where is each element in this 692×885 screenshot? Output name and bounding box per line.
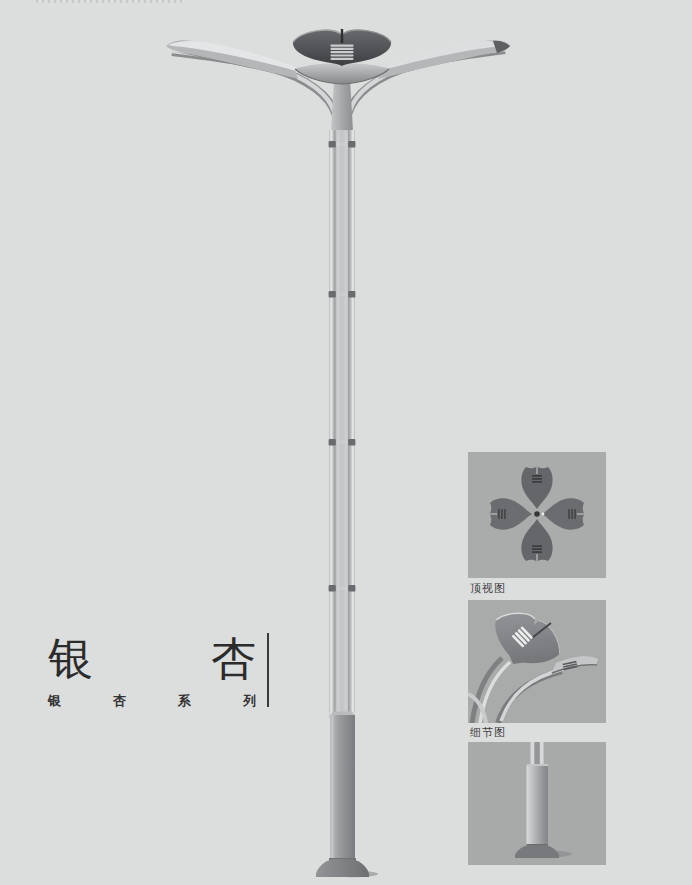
- left-arm: [172, 51, 339, 130]
- series-subtitle: 银 杏 系 列: [48, 692, 256, 710]
- pole: [329, 130, 355, 718]
- pole-base-detail-image: [468, 742, 606, 865]
- right-arm: [345, 49, 505, 130]
- detail-panel-head-detail: [468, 600, 606, 723]
- head-louvers: [331, 45, 354, 60]
- base-column: [329, 712, 355, 861]
- subtitle-char: 系: [178, 692, 191, 710]
- series-title-block: 银 杏 银 杏 系 列: [48, 636, 256, 710]
- lamp-stem: [331, 80, 353, 132]
- head-collar: [295, 63, 389, 84]
- product-title: 银 杏: [48, 636, 256, 681]
- base-plate: [316, 858, 378, 877]
- subtitle-char: 列: [243, 692, 256, 710]
- detail-panel-base: [468, 742, 606, 865]
- right-lamp-blade: [378, 40, 510, 79]
- panel-caption: 细节图: [470, 725, 506, 739]
- left-lamp-blade: [166, 40, 298, 79]
- panel-caption: 顶视图: [470, 581, 506, 595]
- top-clipped-text-remnant: [36, 0, 186, 3]
- catalog-page: 银 杏 银 杏 系 列: [0, 0, 692, 885]
- lamp-top-view-image: [468, 452, 606, 578]
- base-detail-column: [527, 764, 549, 845]
- subtitle-char: 杏: [113, 692, 126, 710]
- title-char: 银: [48, 636, 93, 681]
- title-char: 杏: [211, 636, 256, 681]
- title-divider-line: [267, 633, 269, 707]
- pole-joint-bands: [329, 141, 356, 592]
- lamp-head-detail-image: [468, 600, 606, 723]
- subtitle-char: 银: [48, 692, 61, 710]
- detail-panel-top-view: [468, 452, 606, 578]
- base-detail-tubes: [531, 742, 544, 766]
- center-lamp-head: [293, 29, 391, 66]
